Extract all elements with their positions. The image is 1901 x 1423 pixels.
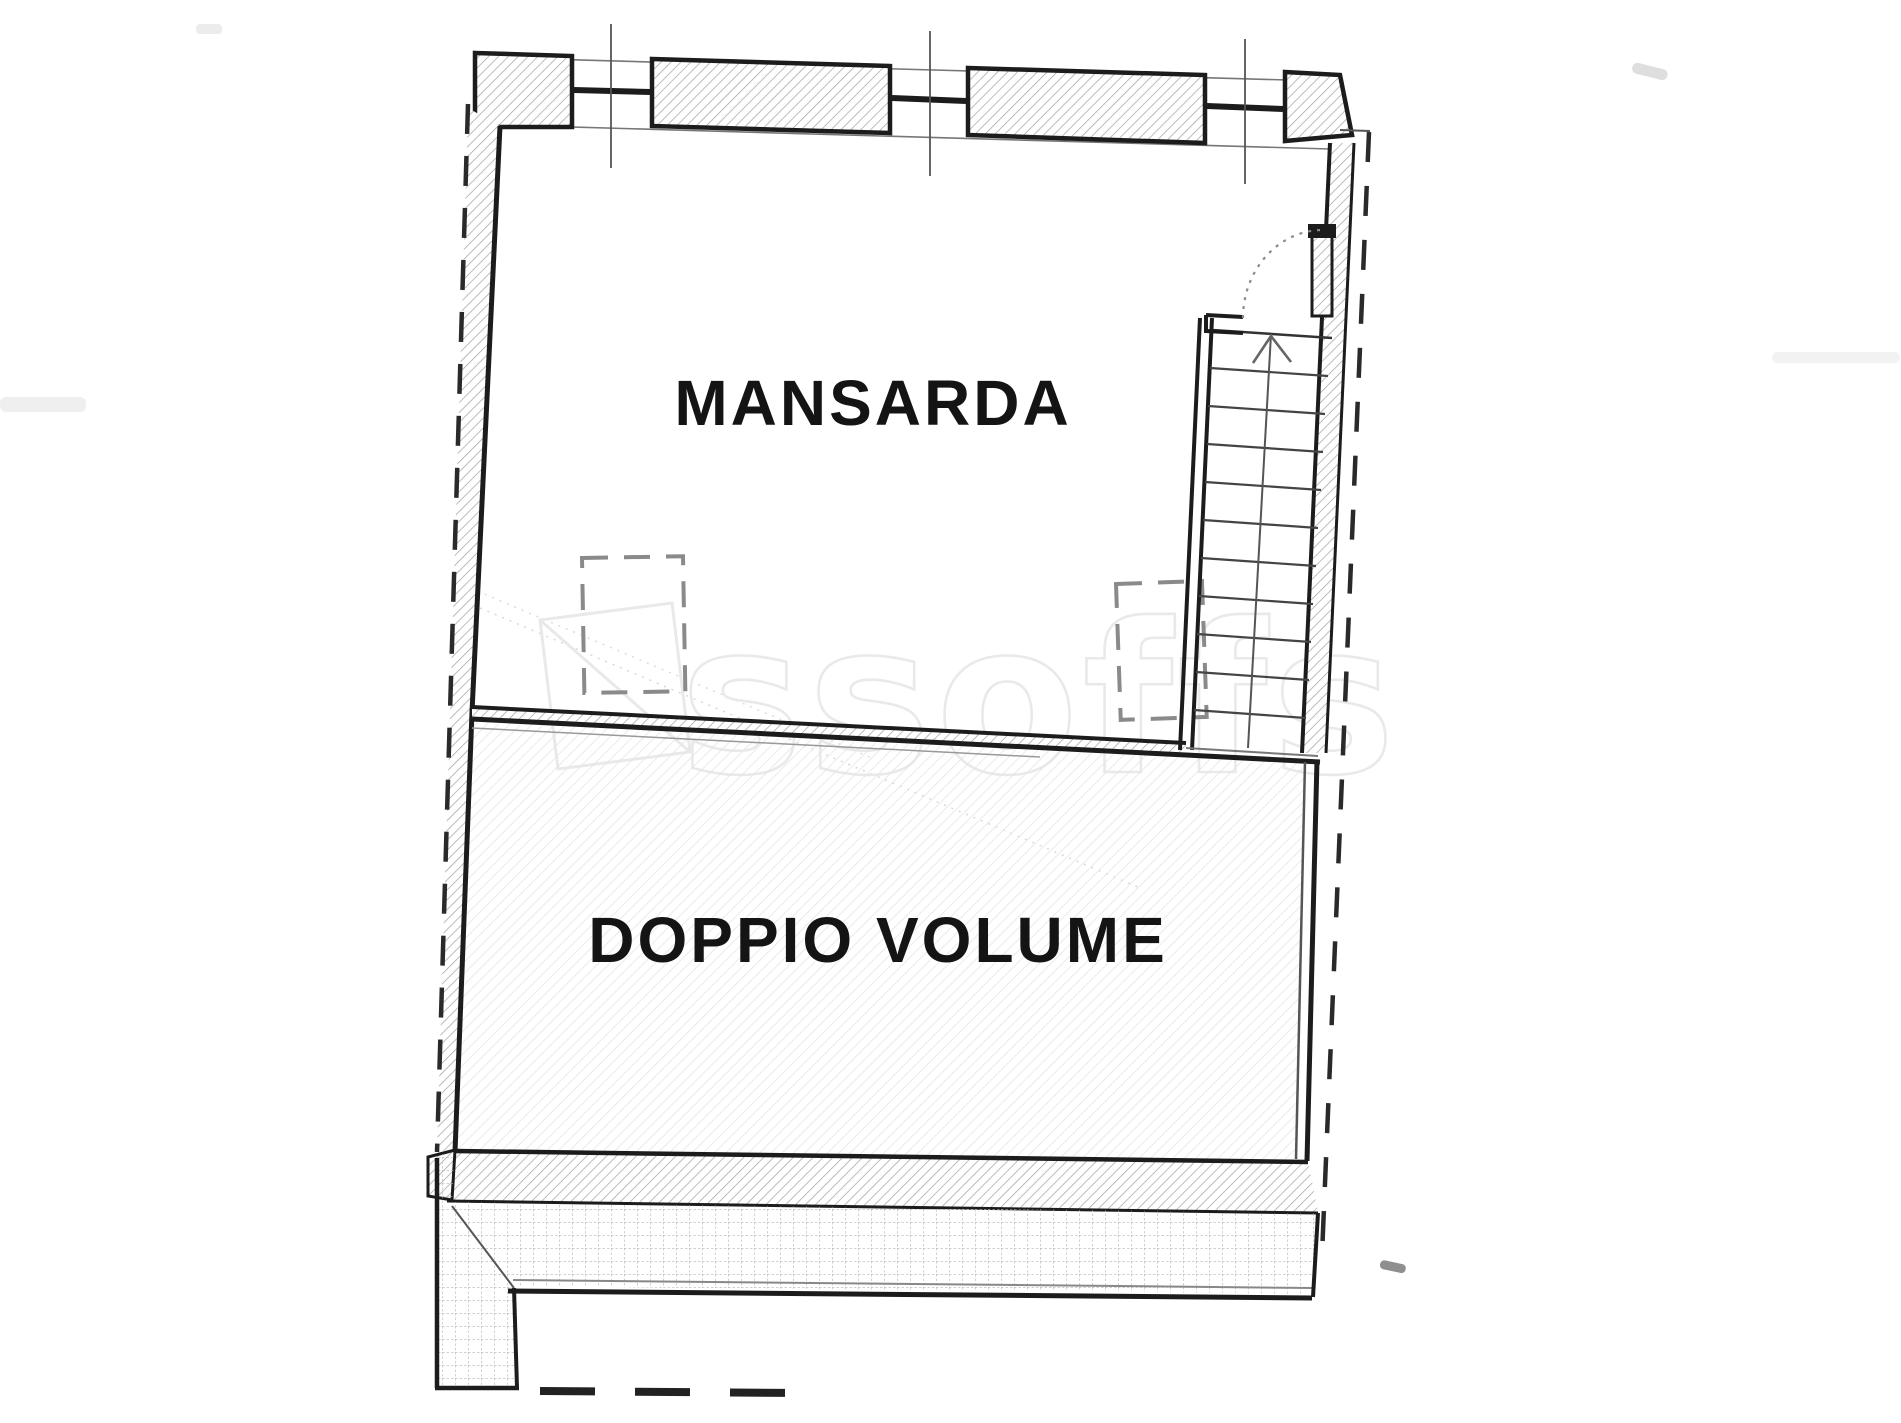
wall-pier	[652, 59, 890, 133]
floor-plan-drawing: ssoffs	[0, 0, 1901, 1423]
floor-plan-page: ssoffs	[0, 0, 1901, 1423]
scan-smudge	[1772, 352, 1900, 363]
scan-smudge	[0, 397, 86, 412]
window-frame	[574, 90, 650, 92]
dashed-boundary-bottom	[540, 1391, 800, 1393]
room-label-mansarda: MANSARDA	[674, 367, 1071, 439]
wall-pier	[475, 53, 572, 127]
window-frame	[892, 98, 966, 101]
door-jamb	[1206, 315, 1243, 317]
wall-step-line	[1340, 130, 1370, 131]
wall-pier	[968, 68, 1205, 143]
room-label-doppio-volume: DOPPIO VOLUME	[588, 904, 1168, 976]
door-hinge-block	[1308, 224, 1336, 238]
terrace-strip	[450, 1202, 1318, 1298]
scan-smudge	[196, 24, 222, 34]
door-leaf	[1312, 229, 1332, 316]
door-jamb	[1206, 331, 1243, 333]
